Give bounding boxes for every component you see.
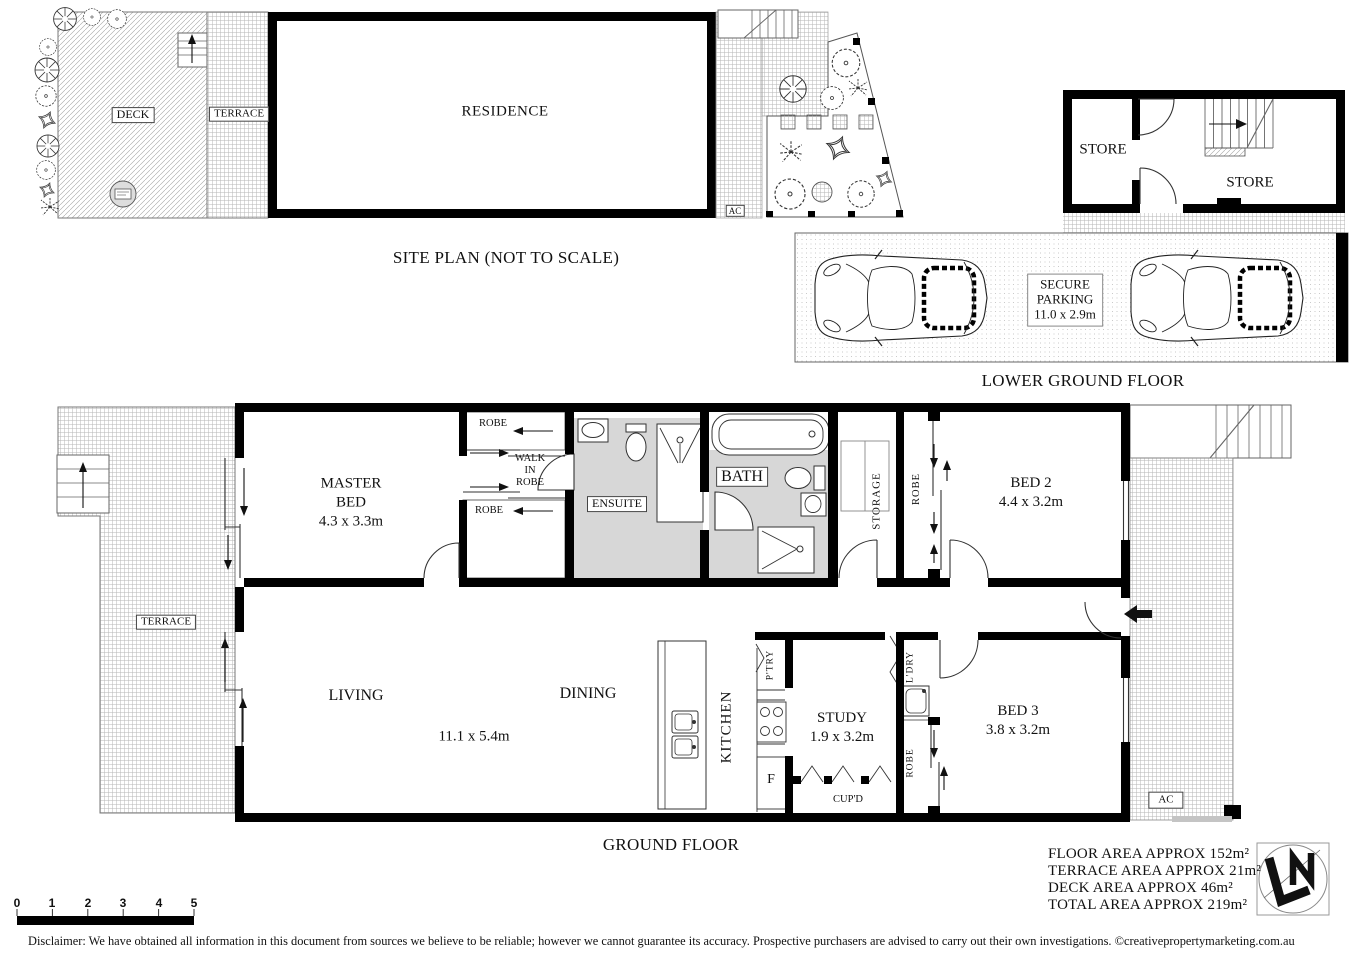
cooktop-icon (757, 702, 786, 742)
scale-tick-5: 5 (191, 897, 198, 911)
ground-floor-title: GROUND FLOOR (603, 835, 739, 855)
kitchen-island (658, 641, 706, 809)
disclaimer-text: Disclaimer: We have obtained all informa… (28, 934, 1295, 949)
scale-tick-3: 3 (120, 897, 127, 911)
store-doors (1138, 99, 1176, 204)
living-dining-dims: 11.1 x 5.4m (438, 728, 509, 745)
walk-in-robe-label: WALK IN ROBE (515, 453, 545, 489)
study-name: STUDY (810, 709, 874, 728)
pantry-label: P'TRY (766, 650, 777, 680)
deck-table-icon (110, 181, 136, 207)
bed3-robe-slider (931, 722, 939, 808)
master-bed-dims: 4.3 x 3.3m (319, 513, 383, 532)
bed2-label: BED 2 4.4 x 3.2m (999, 474, 1063, 512)
wir-line3: ROBE (515, 477, 545, 489)
site-plan-title: SITE PLAN (NOT TO SCALE) (393, 248, 619, 268)
master-bed-line2: BED (319, 494, 383, 513)
deck-area-summary: DECK AREA APPROX 46m² (1048, 880, 1261, 897)
tree-icon (832, 49, 860, 77)
site-stairs-icon (718, 10, 798, 38)
ensuite-label: ENSUITE (587, 496, 647, 512)
toilet-icon (626, 424, 646, 432)
floor-area: FLOOR AREA APPROX 152m² (1048, 846, 1261, 863)
storage-door (839, 540, 877, 578)
bed3-robe-label: ROBE (906, 748, 917, 777)
floorplan-page: DECK TERRACE RESIDENCE AC SITE PLAN (NOT… (0, 0, 1357, 960)
gf-ac-label: AC (1148, 792, 1183, 809)
gf-side-stairs-icon (1130, 405, 1291, 458)
gf-side-path (1130, 458, 1233, 820)
bed2-robe-label: ROBE (911, 473, 923, 505)
total-area: TOTAL AREA APPROX 219m² (1048, 897, 1261, 914)
study-dims: 1.9 x 3.2m (810, 728, 874, 747)
shower-icon (657, 424, 703, 522)
scale-tick-0: 0 (14, 897, 21, 911)
gf-terrace-label: TERRACE (136, 615, 196, 630)
bed3-door (940, 640, 978, 678)
car-icon (1131, 250, 1303, 346)
deck-stairs-icon (178, 33, 207, 67)
secure-parking-line2: PARKING (1034, 293, 1096, 308)
secure-parking-line1: SECURE (1034, 278, 1096, 293)
garden-feature-icon (812, 182, 832, 202)
bed2-name: BED 2 (999, 474, 1063, 493)
store-left-label: STORE (1079, 141, 1126, 158)
gf-terrace-stairs-icon (57, 455, 109, 513)
wir-line1: WALK (515, 453, 545, 465)
toilet-icon (785, 468, 811, 489)
master-door (424, 543, 459, 578)
bath-label: BATH (716, 467, 768, 487)
site-ac-label: AC (726, 205, 745, 217)
master-bed-label: MASTER BED 4.3 x 3.3m (319, 475, 383, 532)
scale-tick-2: 2 (85, 897, 92, 911)
robe-top-label: ROBE (479, 418, 507, 430)
bed2-door (950, 540, 988, 578)
deck-label: DECK (112, 107, 155, 123)
study-label: STUDY 1.9 x 3.2m (810, 709, 874, 747)
area-summary: FLOOR AREA APPROX 152m² TERRACE AREA APP… (1048, 846, 1261, 914)
lower-ground-title: LOWER GROUND FLOOR (982, 371, 1185, 391)
tree-icon (780, 76, 806, 102)
scale-bar (17, 909, 194, 925)
walk-in-robe (463, 412, 565, 578)
north-logo-icon (1257, 843, 1329, 915)
site-terrace-label: TERRACE (209, 107, 269, 122)
tree-icon (821, 87, 844, 110)
fridge-label: F (767, 772, 775, 788)
bed3-dims: 3.8 x 3.2m (986, 721, 1050, 740)
bed3-name: BED 3 (986, 702, 1050, 721)
secure-parking-label: SECURE PARKING 11.0 x 2.9m (1027, 274, 1103, 327)
bed2-dims: 4.4 x 3.2m (999, 493, 1063, 512)
bed3-label: BED 3 3.8 x 3.2m (986, 702, 1050, 740)
ground-floor (57, 403, 1291, 822)
secure-parking-dims: 11.0 x 2.9m (1034, 307, 1096, 322)
living-label: LIVING (328, 687, 383, 705)
wir-line2: IN (515, 465, 545, 477)
car-icon (815, 250, 987, 346)
storage-label: STORAGE (871, 472, 884, 530)
dining-label: DINING (560, 685, 617, 703)
residence-label: RESIDENCE (462, 103, 549, 120)
kitchen-label: KITCHEN (718, 691, 735, 764)
store-right-label: STORE (1226, 174, 1273, 191)
laundry-label: L'DRY (906, 651, 917, 683)
tree-icon (775, 179, 805, 209)
floorplan-linework (0, 0, 1357, 960)
tree-icon (848, 181, 874, 207)
scale-tick-1: 1 (49, 897, 56, 911)
scale-tick-4: 4 (156, 897, 163, 911)
robe-bottom-label: ROBE (475, 505, 503, 517)
cupboard-doors (793, 766, 891, 784)
cupboard-label: CUP'D (833, 794, 863, 806)
terrace-area: TERRACE AREA APPROX 21m² (1048, 863, 1261, 880)
master-bed-line1: MASTER (319, 475, 383, 494)
